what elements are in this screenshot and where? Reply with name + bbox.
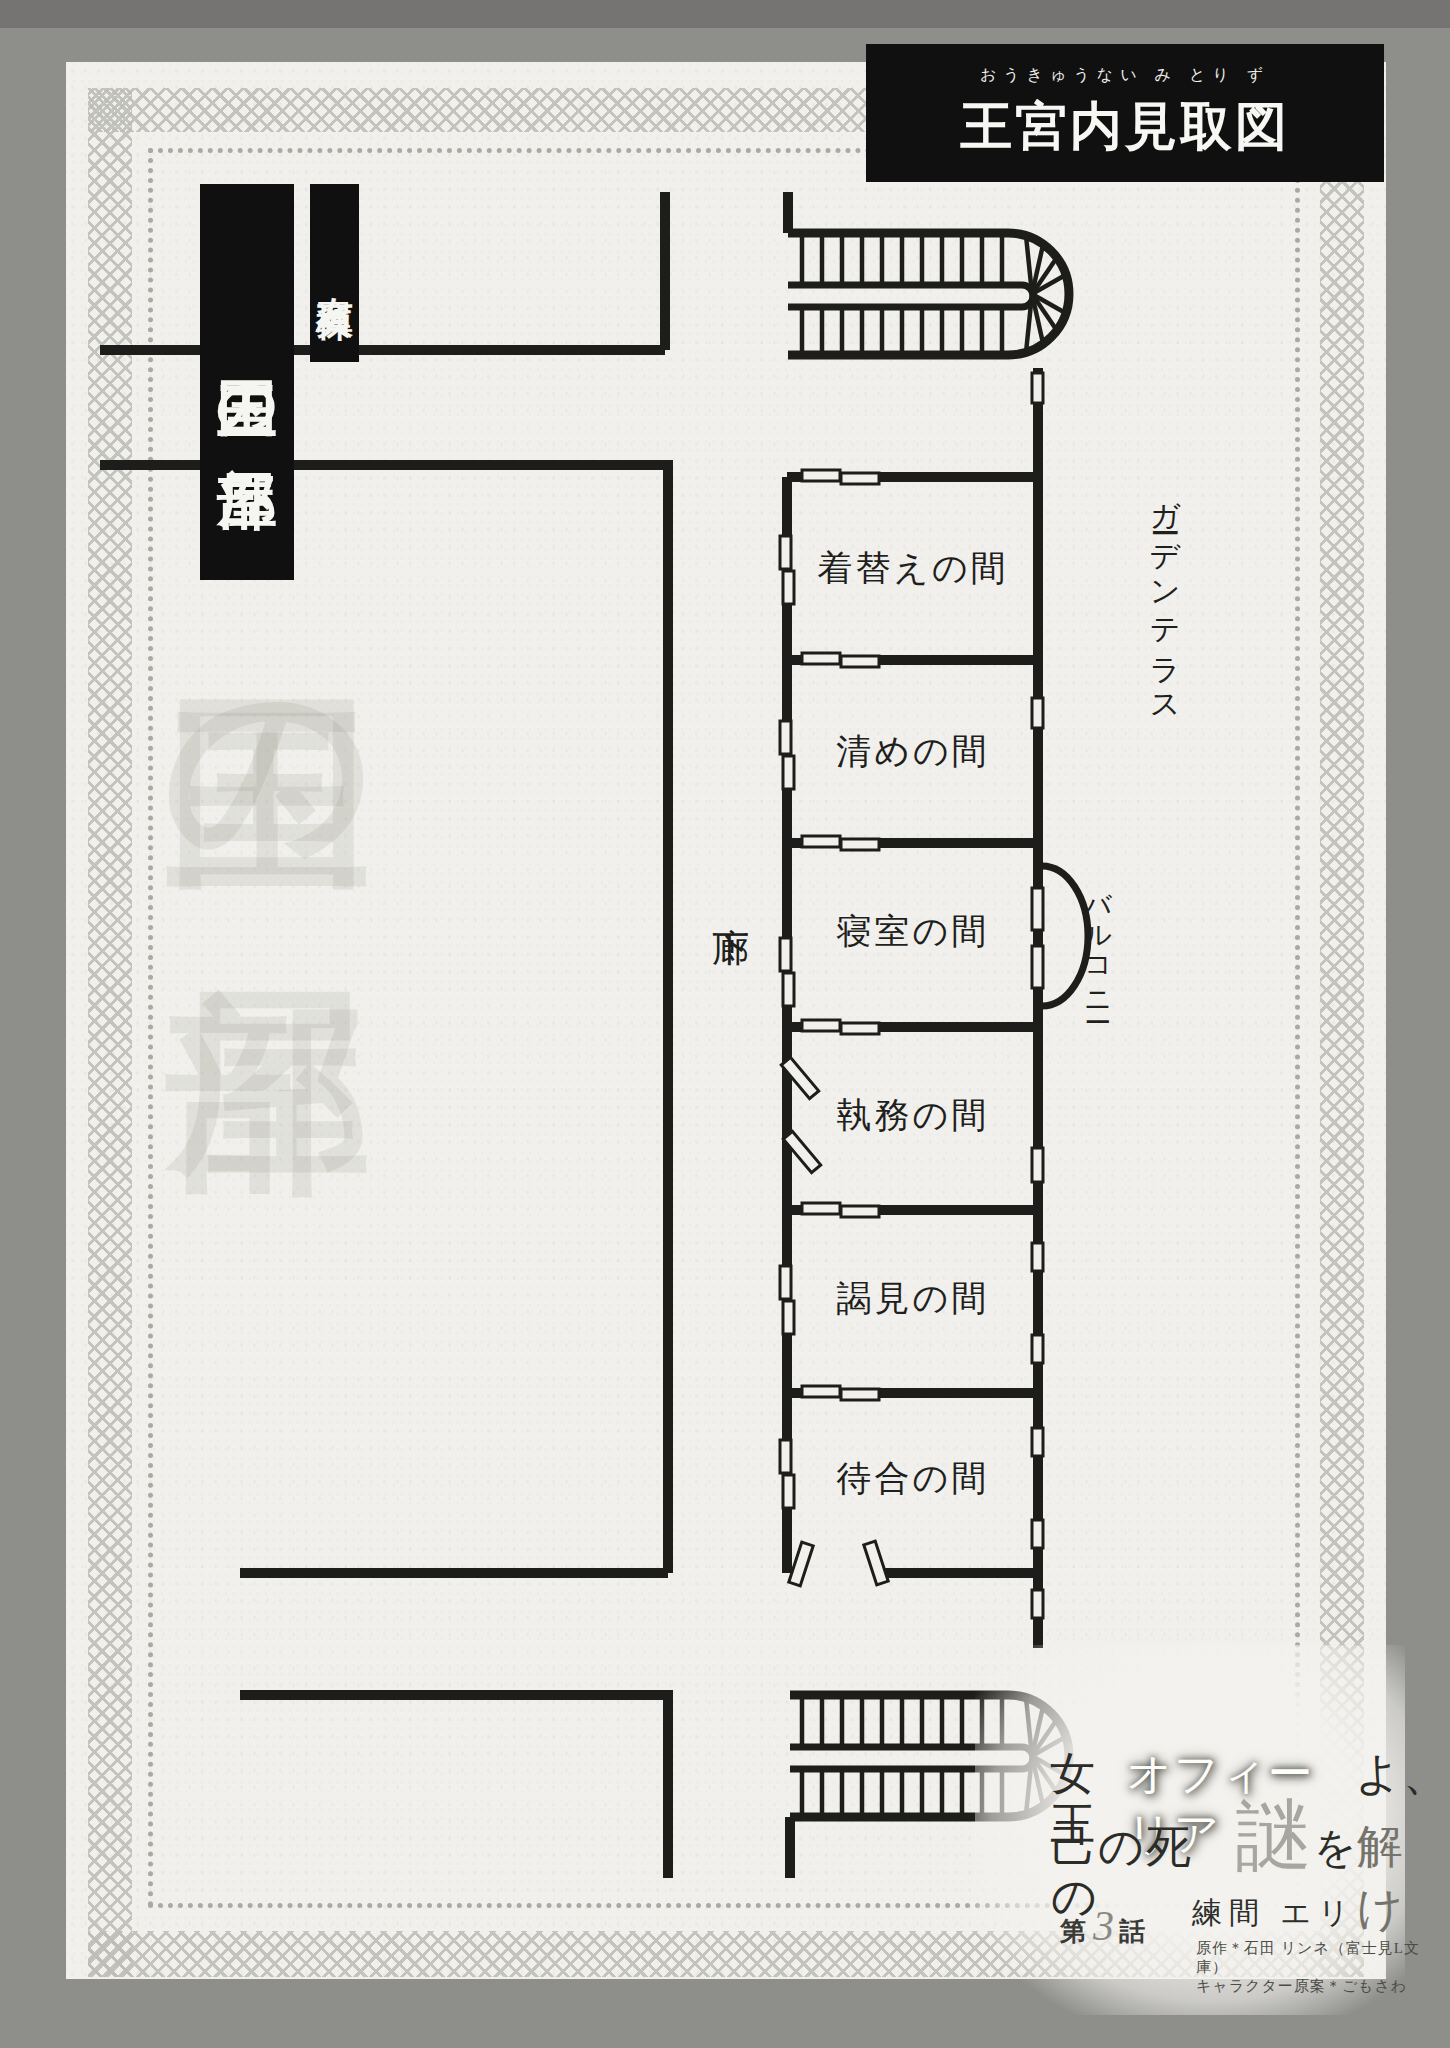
episode-number: 第 3 話 xyxy=(1060,1910,1147,1949)
section-label: 国王の部屋 xyxy=(217,333,277,432)
room-label-purifying: 清めの間 xyxy=(800,728,1026,775)
episode-prefix: 第 xyxy=(1060,1914,1088,1949)
page-title-box: おうきゅうない み とり ず 王宮内見取図 xyxy=(866,44,1384,182)
room-label-bedroom: 寝室の間 xyxy=(800,908,1026,955)
garden-terrace-label: ガーデンテラス xyxy=(1150,480,1180,713)
episode-suffix: 話 xyxy=(1119,1914,1147,1949)
series-title-toke: 解け xyxy=(1357,1816,1450,1940)
series-title-suffix: よ、 xyxy=(1355,1750,1450,1800)
series-title-wo: を xyxy=(1314,1820,1357,1876)
manga-floorplan-page: 国王の部屋 xyxy=(0,0,1450,2048)
lattice-border-left xyxy=(88,88,132,1977)
room-label-dressing: 着替えの間 xyxy=(800,545,1026,592)
credit-character-design: キャラクター原案＊ごもさわ xyxy=(1196,1977,1450,1996)
wing-label-box: 右翼棟 xyxy=(310,184,359,362)
author-name: 練間 エリ xyxy=(1192,1893,1356,1934)
credit-original-author: 原作＊石田 リンネ（富士見L文庫） xyxy=(1196,1939,1450,1977)
balcony-label: バルコニー xyxy=(1084,874,1111,1012)
room-label-audience: 謁見の間 xyxy=(800,1275,1026,1322)
section-label-box: 国王の部屋 xyxy=(200,184,294,580)
page-title-furigana: おうきゅうない み とり ず xyxy=(980,65,1270,86)
top-gray-strip xyxy=(0,0,1450,28)
credits-block: 原作＊石田 リンネ（富士見L文庫） キャラクター原案＊ごもさわ xyxy=(1196,1939,1450,1996)
corridor-label: 廊下 xyxy=(712,898,749,910)
room-label-office: 執務の間 xyxy=(800,1092,1026,1139)
episode-digit: 3 xyxy=(1093,1910,1114,1944)
room-label-waiting: 待合の間 xyxy=(800,1455,1026,1502)
page-title: 王宮内見取図 xyxy=(960,92,1290,162)
series-title-nazo: 謎 xyxy=(1236,1798,1312,1874)
wing-label: 右翼棟 xyxy=(316,267,353,279)
watermark-text: 国王の部屋 xyxy=(168,540,373,1870)
